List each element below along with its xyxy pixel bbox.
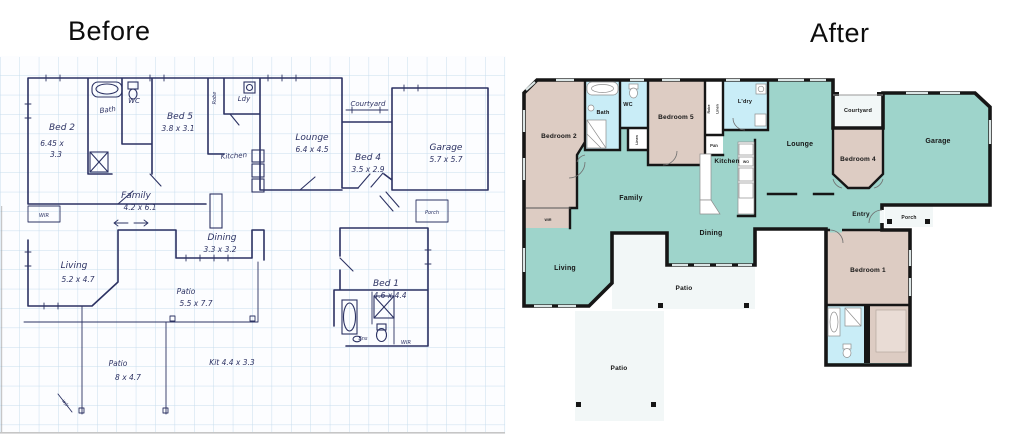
room-label-wir-bed1: WIR: [401, 340, 411, 346]
room-label-dining: Dining: [207, 233, 236, 243]
room-label-linen-strip: Linen: [716, 104, 720, 114]
room-label-porch: Porch: [425, 210, 439, 216]
room-label-courtyard: Courtyard: [844, 108, 872, 114]
room-label-lounge: Lounge: [295, 133, 329, 143]
room-dims-family: 4.2 x 6.1: [123, 203, 156, 212]
after-plan-render: Bedroom 2 Bath WC Linen Bedroom 5 Robe L…: [512, 58, 1024, 446]
room-label-bed5: Bed 5: [167, 112, 193, 122]
room-label-patio-lower: Patio: [611, 365, 628, 372]
room-label-bed1: Bed 1: [373, 279, 399, 289]
room-label-pantry: Pan: [710, 143, 718, 148]
room-label-bedroom5: Bedroom 5: [658, 114, 694, 121]
room-label-ens: Ens: [359, 336, 368, 342]
room-label-family: Family: [121, 191, 151, 201]
room-label-bedroom2: Bedroom 2: [541, 133, 577, 140]
room-dims-garage: 5.7 x 5.7: [429, 155, 462, 164]
before-plan-sketch: Bed 2 6.45 x 3.3 Bath WC Bed 5 3.8 x 3.1…: [0, 56, 506, 446]
room-label-patio1: Patio: [177, 287, 196, 296]
room-label-courtyard: Courtyard: [351, 100, 387, 108]
room-label-bed2: Bed 2: [49, 123, 75, 133]
note-kit-dims: Kit 4.4 x 3.3: [209, 358, 255, 367]
room-label-porch: Porch: [901, 215, 916, 221]
room-label-robe: Robe: [707, 105, 711, 114]
room-label-entry: Entry: [852, 211, 870, 218]
room-label-bedroom4: Bedroom 4: [840, 156, 876, 163]
room-label-garage: Garage: [430, 143, 463, 153]
room-dims-patio2: 8 x 4.7: [115, 373, 141, 382]
room-label-bedroom1: Bedroom 1: [850, 267, 886, 274]
room-label-patio2: Patio: [109, 359, 128, 368]
room-label-living: Living: [61, 261, 88, 271]
room-dims-bed2-b: 3.3: [50, 150, 62, 159]
room-label-dining: Dining: [700, 230, 723, 237]
room-label-wir: WIR: [545, 218, 552, 222]
floorplan-comparison: Before After: [0, 0, 1024, 446]
before-title: Before: [68, 16, 151, 47]
room-label-linen-wc: Linen: [635, 135, 639, 145]
graph-paper: [0, 56, 506, 434]
room-label-wir-family: WIR: [39, 213, 49, 219]
room-dims-patio1: 5.5 x 7.7: [179, 299, 212, 308]
room-dims-dining: 3.3 x 3.2: [203, 245, 236, 254]
room-bedroom5: [648, 80, 705, 165]
room-label-patio-upper: Patio: [676, 285, 693, 292]
appliance-label-wo: WO: [743, 160, 749, 164]
room-dims-bed5: 3.8 x 3.1: [161, 124, 194, 133]
room-label-wc: WC: [623, 102, 633, 108]
room-dims-living: 5.2 x 4.7: [61, 275, 94, 284]
room-label-wc: WC: [128, 97, 140, 105]
room-label-lounge: Lounge: [787, 141, 813, 148]
room-label-bed4: Bed 4: [355, 153, 381, 163]
room-label-kitchen: Kitchen: [714, 158, 739, 165]
room-label-ldry: L'dry: [738, 99, 753, 105]
room-label-bath: Bath: [596, 110, 609, 116]
room-label-robe: Robe: [212, 92, 218, 105]
room-dims-bed4: 3.5 x 2.9: [351, 165, 384, 174]
room-dims-lounge: 6.4 x 4.5: [295, 145, 328, 154]
room-dims-bed2-a: 6.45 x: [40, 139, 64, 148]
room-label-garage: Garage: [925, 138, 950, 145]
room-label-family: Family: [619, 195, 642, 202]
room-label-living: Living: [554, 265, 576, 272]
room-dims-bed1: 4.6 x 4.4: [373, 291, 406, 300]
after-title: After: [810, 18, 870, 49]
room-label-ldy: Ldy: [238, 95, 251, 103]
